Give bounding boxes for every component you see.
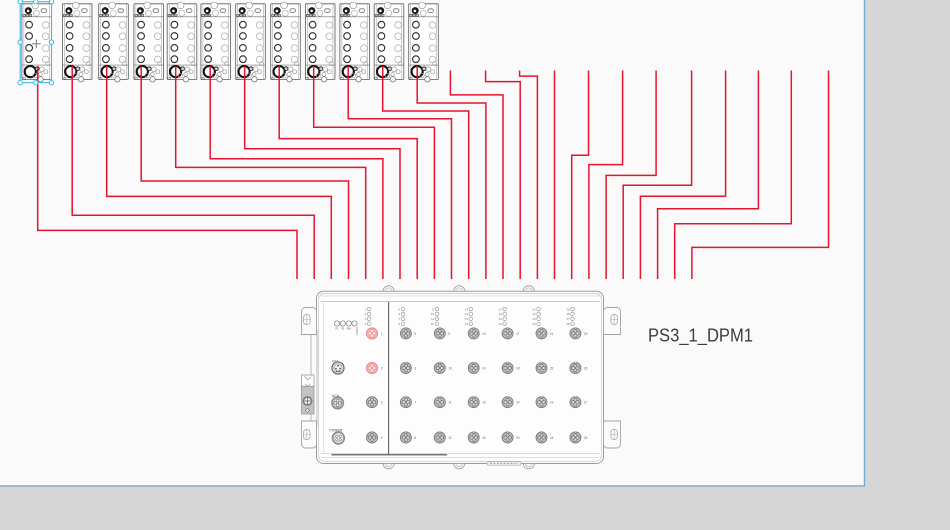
- svg-text:12: 12: [448, 436, 452, 440]
- svg-text:18: 18: [499, 312, 503, 316]
- svg-text:14: 14: [465, 312, 469, 316]
- svg-text:24: 24: [550, 436, 554, 440]
- svg-text:11: 11: [448, 401, 452, 405]
- svg-text:15: 15: [465, 317, 469, 321]
- svg-text:17: 17: [516, 332, 520, 336]
- svg-text:6: 6: [414, 366, 416, 370]
- svg-text:5: 5: [414, 332, 416, 336]
- svg-text:10: 10: [431, 312, 435, 316]
- svg-text:28: 28: [584, 436, 588, 440]
- svg-text:26: 26: [584, 366, 588, 370]
- svg-text:13: 13: [465, 307, 469, 311]
- svg-text:P2: P2: [341, 327, 345, 331]
- svg-text:P1: P1: [335, 327, 339, 331]
- svg-text:27: 27: [584, 401, 588, 405]
- svg-text:14: 14: [482, 366, 486, 370]
- svg-text:19: 19: [499, 317, 503, 321]
- svg-text:7: 7: [414, 401, 416, 405]
- svg-text:25: 25: [584, 332, 588, 336]
- svg-text:26: 26: [566, 312, 570, 316]
- svg-text:15: 15: [482, 401, 486, 405]
- svg-text:8: 8: [414, 436, 416, 440]
- svg-text:22: 22: [532, 312, 536, 316]
- svg-text:27: 27: [566, 317, 570, 321]
- svg-text:11: 11: [431, 317, 434, 321]
- svg-text:24: 24: [532, 322, 536, 326]
- svg-text:22: 22: [550, 366, 554, 370]
- svg-text:23: 23: [532, 317, 536, 321]
- svg-text:20: 20: [516, 436, 520, 440]
- svg-text:FAULT: FAULT: [355, 327, 359, 335]
- svg-text:13: 13: [482, 332, 486, 336]
- svg-text:10: 10: [448, 366, 452, 370]
- svg-text:2: 2: [381, 366, 383, 370]
- svg-text:19: 19: [516, 401, 520, 405]
- svg-text:9: 9: [448, 332, 450, 336]
- svg-text:23: 23: [550, 401, 554, 405]
- svg-text:28: 28: [566, 322, 570, 326]
- svg-text:12: 12: [431, 322, 435, 326]
- svg-text:25: 25: [566, 307, 570, 311]
- svg-text:16: 16: [465, 322, 469, 326]
- svg-text:16: 16: [482, 436, 486, 440]
- svg-text:20: 20: [499, 322, 503, 326]
- svg-text:RM: RM: [347, 327, 351, 331]
- svg-text:21: 21: [550, 332, 554, 336]
- svg-text:PS3_1_DPM1: PS3_1_DPM1: [648, 324, 753, 346]
- svg-text:3: 3: [381, 401, 383, 405]
- svg-text:17: 17: [499, 307, 503, 311]
- svg-text:18: 18: [516, 366, 520, 370]
- svg-text:4: 4: [381, 436, 383, 440]
- svg-text:21: 21: [532, 307, 536, 311]
- svg-text:1: 1: [381, 332, 383, 336]
